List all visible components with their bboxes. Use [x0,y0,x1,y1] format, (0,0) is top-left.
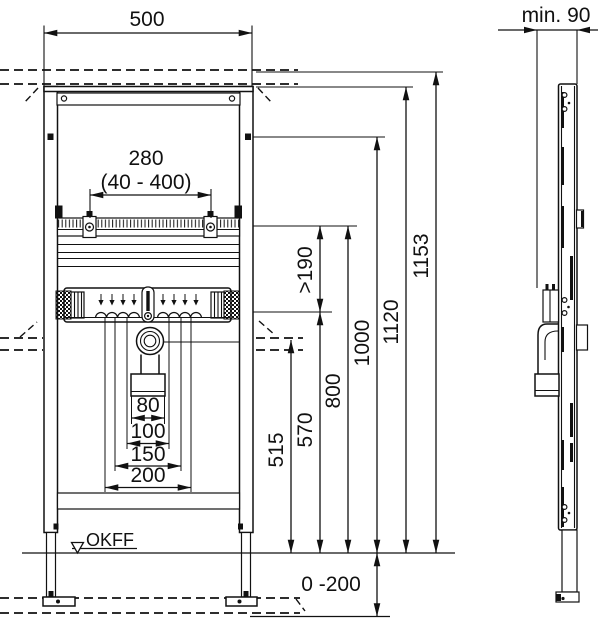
side-leg [562,530,577,592]
drain-socket [131,374,165,396]
left-post [44,87,58,533]
tap-mounting-plate [56,287,239,322]
side-wall-bracket [577,325,588,350]
label-clearance: >190 [294,246,317,293]
foot-bolt [244,591,249,597]
break-mark [24,88,38,103]
foot-anchor [238,600,242,604]
label-100: 100 [130,420,165,443]
side-drain-socket [535,374,559,396]
label-width: 500 [129,8,164,31]
side-tap-plate [543,290,559,322]
break-mark [20,322,37,337]
legs-and-feet [43,524,257,607]
label-80: 80 [136,394,159,417]
plate-end-block-right [224,291,239,319]
label-fixing-spacing: 280 [128,147,163,170]
left-leg [47,533,56,598]
right-leg [242,533,251,598]
break-mark [258,88,272,103]
top-crossbar-hole [229,96,234,101]
label-depth: min. 90 [522,4,591,27]
wall-band-mid-left [0,322,43,350]
foot-anchor [56,600,60,604]
top-crossbar-hole [61,96,66,101]
break-mark [259,321,275,335]
label-floor-range: 0 -200 [301,573,361,596]
drawing-canvas: 500 min. 90 280 (40 - 400) >190 1153 112… [0,0,600,618]
label-1153: 1153 [410,233,433,278]
post-fixing-tab-right [245,134,251,141]
label-1120: 1120 [380,299,403,344]
installation-drawing: 500 min. 90 280 (40 - 400) >190 1153 112… [0,0,600,618]
top-edge [44,87,253,92]
label-515: 515 [265,432,288,467]
break-mark [296,599,305,611]
label-1000: 1000 [351,320,374,367]
label-800: 800 [322,373,345,408]
leg-clamp-bolt [238,524,243,530]
label-200: 200 [130,464,165,487]
label-fixing-range: (40 - 400) [100,171,191,194]
foot-bolt [49,591,54,597]
plate-end-block-left [56,291,71,319]
label-570: 570 [294,412,317,447]
label-150: 150 [130,443,165,466]
top-crossbar [57,93,240,105]
center-slot-groove [146,291,149,311]
right-post [240,87,254,533]
level-triangle-icon [72,543,84,554]
side-view [535,30,588,602]
rail-bracket-right [235,206,243,219]
leg-clamp-bolt [54,524,59,530]
fixing-rail [55,206,242,267]
label-okff: OKFF [86,530,134,550]
bottom-crossbar [58,493,240,509]
post-fixing-tab-left [48,134,54,141]
wall-band-mid-right [256,321,303,350]
rail-bracket-left [55,206,63,219]
